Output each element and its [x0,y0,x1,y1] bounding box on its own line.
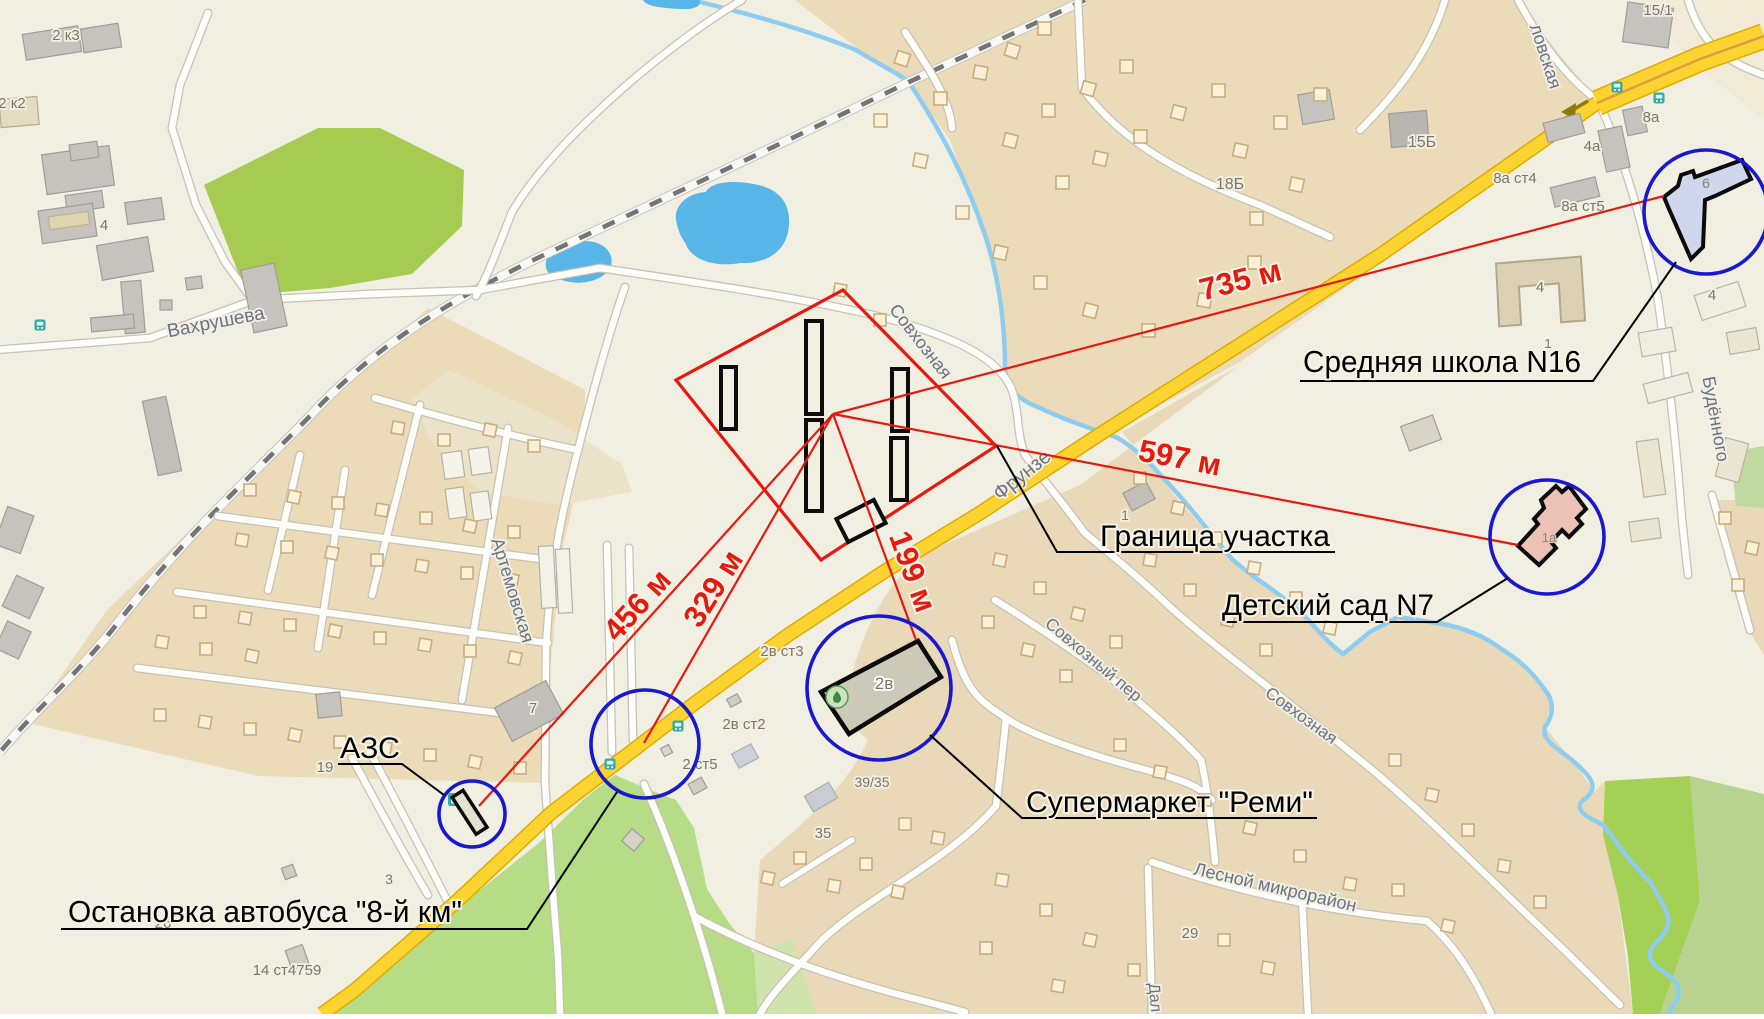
svg-text:4а: 4а [1584,138,1601,155]
svg-text:АЗС: АЗС [340,732,400,765]
svg-text:35: 35 [815,825,832,842]
svg-text:2в ст3: 2в ст3 [760,643,803,660]
svg-text:2в ст2: 2в ст2 [722,716,765,733]
svg-text:4: 4 [1536,279,1544,296]
svg-text:7: 7 [529,700,537,717]
svg-text:14 ст4759: 14 ст4759 [253,962,322,979]
svg-text:Дал: Дал [1145,982,1164,1012]
svg-text:8а: 8а [1643,109,1660,126]
svg-text:4: 4 [100,217,108,234]
svg-text:15Б: 15Б [1408,134,1436,151]
svg-text:Граница участка: Граница участка [1100,520,1330,553]
svg-text:2 к2: 2 к2 [0,95,26,112]
svg-text:2в: 2в [875,674,894,693]
svg-text:29: 29 [1182,925,1199,942]
svg-text:6: 6 [1702,175,1710,191]
svg-text:3: 3 [385,871,393,887]
svg-text:19: 19 [317,759,334,776]
svg-text:Средняя школа N16: Средняя школа N16 [1303,344,1581,379]
svg-text:Детский сад N7: Детский сад N7 [1222,589,1434,622]
svg-text:2 ст5: 2 ст5 [682,756,717,773]
svg-text:39/35: 39/35 [854,774,889,790]
svg-text:8а ст4: 8а ст4 [1493,170,1537,187]
svg-text:4: 4 [1708,287,1716,304]
svg-text:15/1: 15/1 [1643,2,1672,19]
svg-text:18Б: 18Б [1216,176,1244,193]
svg-text:Остановка автобуса "8-й км": Остановка автобуса "8-й км" [68,894,462,929]
svg-text:Супермаркет "Реми": Супермаркет "Реми" [1026,786,1313,819]
svg-text:2 к3: 2 к3 [52,27,79,44]
svg-text:1а: 1а [1542,530,1557,545]
